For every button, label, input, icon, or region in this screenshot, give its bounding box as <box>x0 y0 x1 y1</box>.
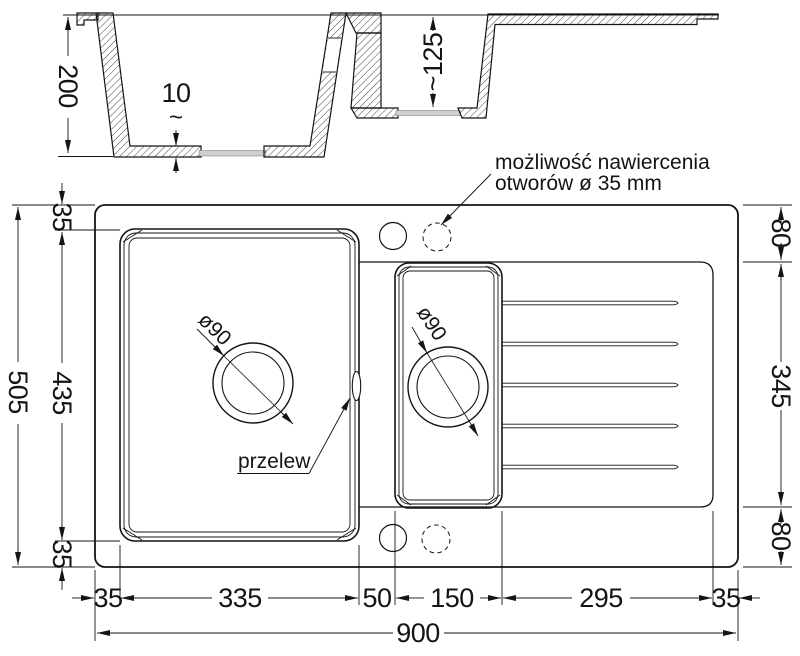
dim-435-label: 435 <box>47 371 77 415</box>
small-drain-diameter-callout: ø90 <box>412 302 478 436</box>
technical-drawing-canvas: 200 10 ~ ~125 <box>0 0 800 656</box>
dim-bottom-margin-right: 35 <box>711 583 760 613</box>
drill-note-line2: otworów ø 35 mm <box>495 172 662 195</box>
dim-10-tilde: ~ <box>169 104 183 131</box>
section-main-drain-recess <box>199 151 266 157</box>
dim-345-label: 345 <box>766 364 796 408</box>
groove <box>502 424 678 428</box>
drill-note-line1: możliwość nawiercenia <box>495 151 710 174</box>
dim-125-label: ~125 <box>418 33 448 92</box>
dim-35-top-label: 35 <box>47 202 77 231</box>
dim-200-label: 200 <box>53 64 83 108</box>
dim-right-drainer: 345 <box>766 264 796 505</box>
dim-150-label: 150 <box>430 583 474 613</box>
dim-295-label: 295 <box>579 583 623 613</box>
overflow-callout: przelew <box>237 398 350 474</box>
main-basin <box>120 229 361 541</box>
dim-50-label: 50 <box>362 583 391 613</box>
section-mid-rim <box>346 13 381 33</box>
optional-hole-bottom-dashed <box>422 525 450 553</box>
dim-floor-thickness: 10 ~ <box>161 78 190 173</box>
section-view: 200 10 ~ ~125 <box>53 13 719 173</box>
dim-505-label: 505 <box>3 370 33 414</box>
dim-35-right-label: 35 <box>711 583 740 613</box>
section-left-rim <box>77 13 98 25</box>
groove <box>502 383 678 387</box>
dim-right-deck-bottom: 80 <box>766 509 796 565</box>
small-drain-diameter-label: ø90 <box>412 302 451 345</box>
dim-depth-small: ~125 <box>418 17 448 107</box>
dims-right: 80 345 80 <box>743 205 796 567</box>
overflow-slot <box>352 372 360 401</box>
deck-and-drainer-outline <box>359 262 713 507</box>
section-main-right-wall-fill <box>264 13 346 157</box>
section-small-floor-left <box>351 108 398 118</box>
groove <box>502 465 678 469</box>
main-drain-inner <box>222 352 284 414</box>
dim-bottom-small-basin: 150 <box>396 583 501 613</box>
dim-335-label: 335 <box>218 583 262 613</box>
dim-bottom-gap: 50 <box>362 583 391 613</box>
section-small-left-wall <box>351 33 381 108</box>
dim-left-margin-bottom: 35 <box>47 539 77 590</box>
dim-bottom-main-basin: 335 <box>121 583 358 613</box>
dim-35-bottom-label: 35 <box>47 539 77 568</box>
section-small-drain-recess <box>396 111 460 116</box>
main-drain-outer <box>213 343 293 423</box>
groove <box>502 301 678 305</box>
overflow-label: przelew <box>238 450 311 473</box>
dim-left-basin: 435 <box>47 232 77 540</box>
dims-left: 505 435 35 35 <box>3 183 120 590</box>
optional-hole-top-dashed <box>423 223 451 251</box>
dim-left-total: 505 <box>3 207 33 565</box>
dim-bottom-total: 900 <box>97 618 736 648</box>
drill-note-callout: możliwość nawiercenia otworów ø 35 mm <box>441 151 710 225</box>
main-drain-diameter-callout: ø90 <box>194 308 293 424</box>
dim-900-label: 900 <box>396 618 440 648</box>
dim-left-margin-top: 35 <box>47 183 77 232</box>
dim-right-deck-top: 80 <box>766 207 796 260</box>
groove <box>502 342 678 346</box>
faucet-holes <box>380 223 452 554</box>
faucet-hole-bottom <box>380 525 407 552</box>
small-basin <box>395 263 502 508</box>
dim-80-bottom-label: 80 <box>766 521 796 550</box>
main-drain-diameter-label: ø90 <box>194 308 236 350</box>
faucet-hole-top <box>380 223 407 250</box>
plan-view: ø90 ø90 przelew możliwość nawiercenia ot… <box>95 151 738 567</box>
dim-bottom-margin-left: 35 <box>72 583 123 613</box>
drainer-grooves <box>502 301 678 469</box>
section-small-right-wall-and-drainer-deck <box>458 14 718 118</box>
sink-technical-drawing: 200 10 ~ ~125 <box>0 0 800 656</box>
dim-bottom-drainer: 295 <box>503 583 712 613</box>
dim-35-left-label: 35 <box>93 583 122 613</box>
